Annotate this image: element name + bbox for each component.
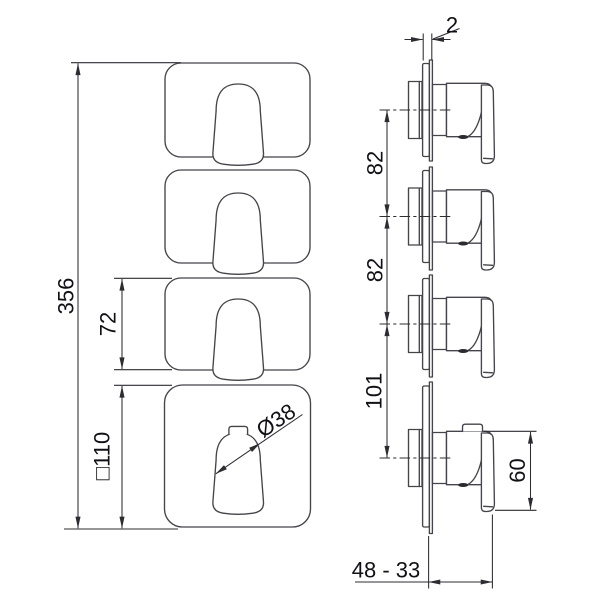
valve-side-4: [380, 430, 495, 512]
dim-spacing-middle-label: 82: [363, 258, 388, 282]
front-handle-4: [213, 433, 264, 514]
front-handle-1: [213, 84, 264, 165]
diverter-tab: [229, 426, 248, 434]
side-view: 2 82 82 101 60 48 - 33: [352, 13, 537, 589]
front-handle-3: [213, 299, 264, 380]
valve-side-2: [380, 188, 495, 270]
dim-depth-range-label: 48 - 33: [352, 558, 421, 583]
dim-spacing-top-label: 82: [363, 151, 388, 175]
dim-plate-height: 72: [96, 278, 173, 369]
diverter-button-side: [463, 424, 483, 431]
dim-plate-height-label: 72: [96, 312, 121, 336]
front-view: 356 72 □110 Ø38: [54, 63, 311, 529]
escutcheon-side-4: [423, 386, 430, 527]
dim-plate-thickness: 2: [405, 13, 460, 61]
technical-drawing-page: 356 72 □110 Ø38: [0, 0, 600, 600]
front-handle-2: [213, 193, 264, 274]
valve-side-3: [380, 296, 495, 378]
dim-plate-thickness-label: 2: [446, 13, 458, 38]
mixer-technical-drawing: 356 72 □110 Ø38: [0, 0, 600, 600]
dim-total-height: 356: [54, 63, 182, 529]
dim-valve-spacing: 82 82 101: [362, 111, 388, 458]
dim-handle-height-label: 60: [505, 458, 530, 482]
dim-spacing-bottom-label: 101: [362, 373, 387, 410]
valve-side-1: [380, 82, 495, 164]
dim-plate-size: □110: [90, 385, 173, 528]
wall-plate-strips: [423, 60, 433, 534]
dim-plate-size-label: □110: [90, 432, 115, 480]
dim-total-height-label: 356: [54, 278, 79, 315]
